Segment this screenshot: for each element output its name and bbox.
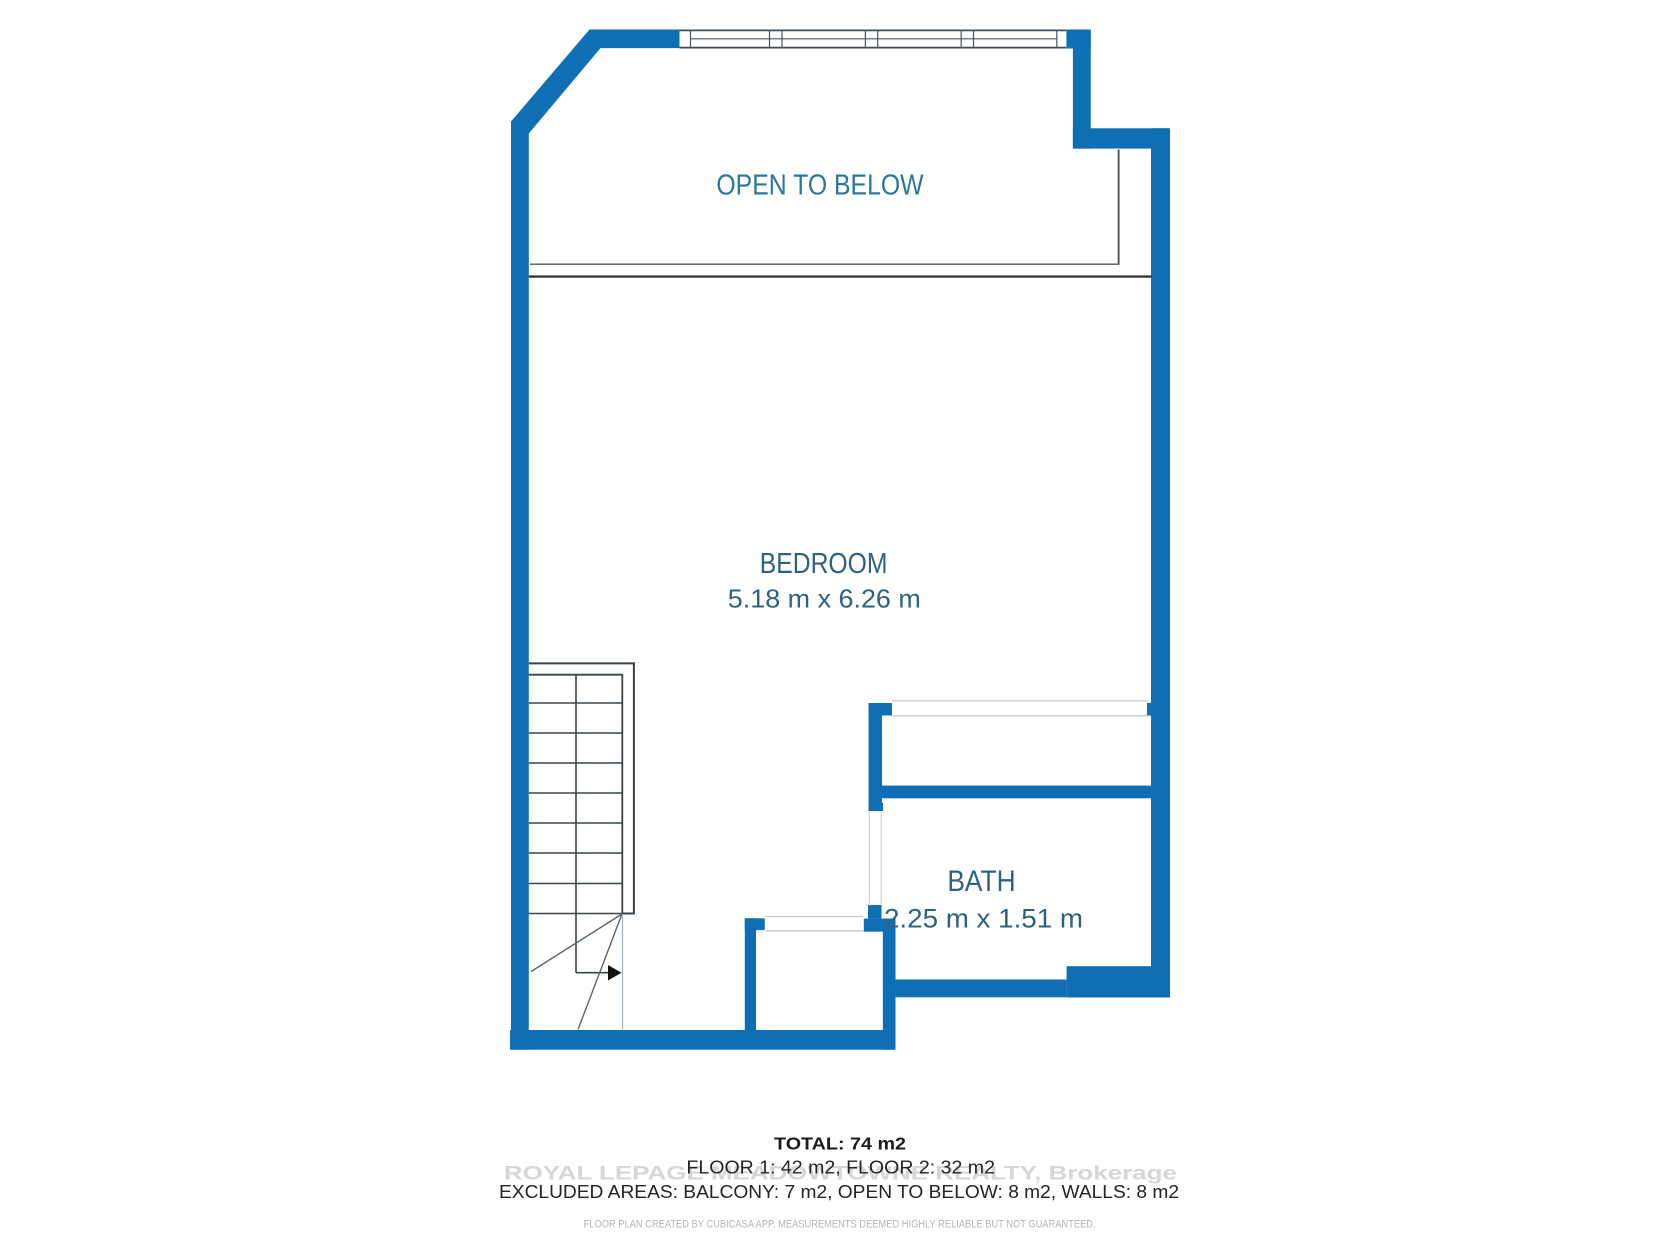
svg-text:FLOOR PLAN CREATED BY CUBICASA: FLOOR PLAN CREATED BY CUBICASA APP. MEAS… xyxy=(584,1219,1096,1231)
svg-text:BEDROOM: BEDROOM xyxy=(760,548,888,580)
svg-text:FLOOR 1: 42 m2, FLOOR 2: 32 m2: FLOOR 1: 42 m2, FLOOR 2: 32 m2 xyxy=(686,1157,995,1178)
svg-text:5.18 m x 6.26 m: 5.18 m x 6.26 m xyxy=(728,583,921,613)
svg-text:EXCLUDED AREAS: BALCONY: 7 m2,: EXCLUDED AREAS: BALCONY: 7 m2, OPEN TO B… xyxy=(499,1181,1179,1202)
svg-text:OPEN TO BELOW: OPEN TO BELOW xyxy=(716,169,923,201)
svg-text:2.25 m x 1.51 m: 2.25 m x 1.51 m xyxy=(884,903,1083,933)
svg-text:BATH: BATH xyxy=(947,865,1015,898)
svg-text:TOTAL: 74 m2: TOTAL: 74 m2 xyxy=(774,1133,906,1153)
